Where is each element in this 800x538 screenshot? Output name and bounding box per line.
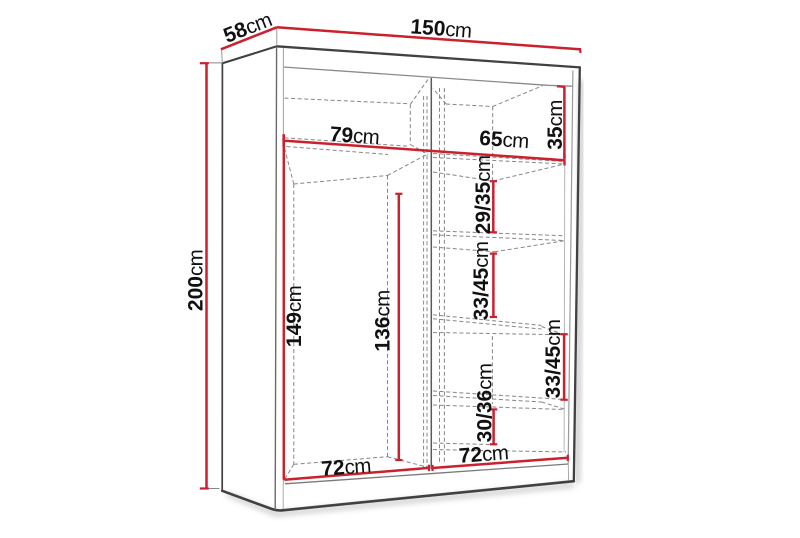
svg-text:72cm: 72cm	[320, 454, 371, 481]
svg-text:79cm: 79cm	[329, 123, 380, 149]
svg-text:35cm: 35cm	[544, 100, 567, 150]
svg-text:29/35cm: 29/35cm	[472, 156, 495, 235]
svg-text:200cm: 200cm	[185, 250, 208, 311]
svg-text:30/36cm: 30/36cm	[474, 364, 497, 443]
svg-text:33/45cm: 33/45cm	[470, 242, 493, 321]
svg-text:150cm: 150cm	[410, 15, 473, 42]
svg-text:65cm: 65cm	[478, 127, 529, 153]
svg-text:33/45cm: 33/45cm	[542, 320, 565, 399]
svg-text:72cm: 72cm	[458, 441, 509, 468]
svg-text:149cm: 149cm	[283, 286, 306, 347]
svg-text:136cm: 136cm	[372, 290, 395, 351]
